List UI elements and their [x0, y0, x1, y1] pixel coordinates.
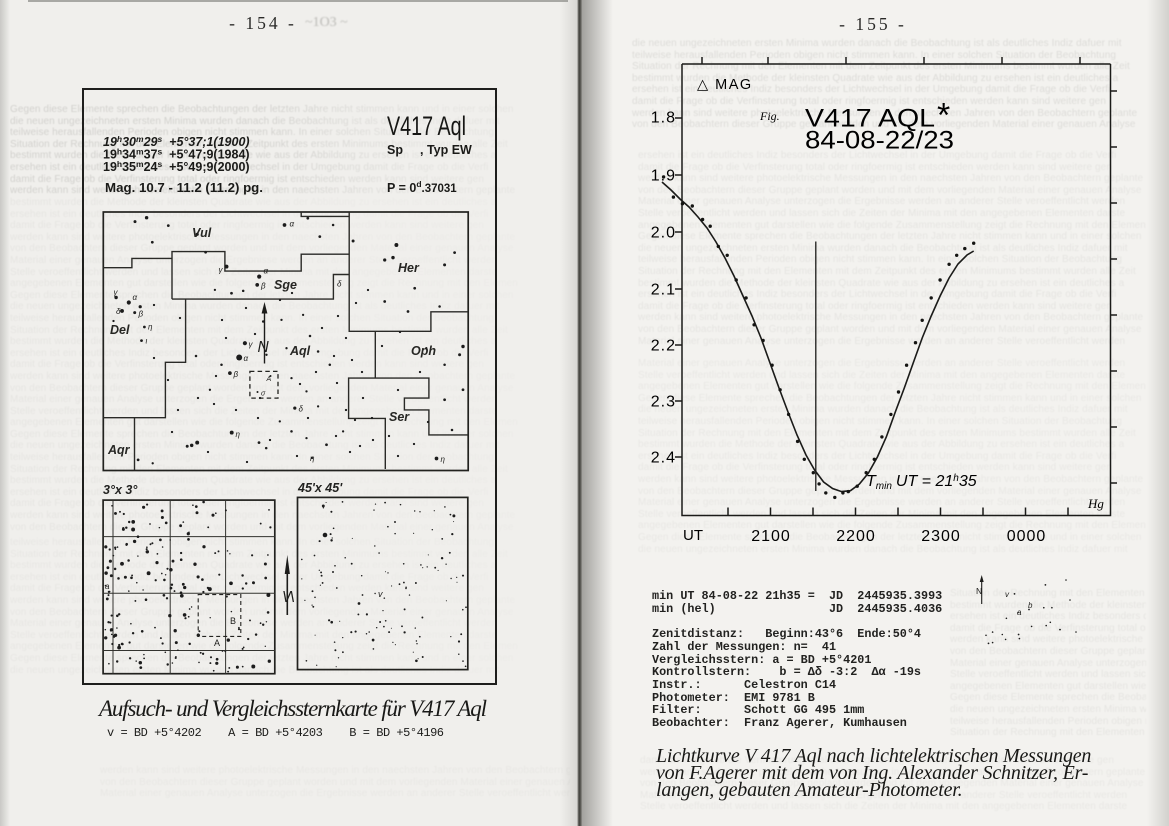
svg-text:v = BD +5°4202 A = BD +5°42: v = BD +5°4202 A = BD +5°4203 B = BD +5°…: [107, 726, 444, 740]
svg-text:A: A: [214, 638, 220, 648]
svg-text:V417 Aql: V417 Aql: [387, 111, 466, 141]
svg-text:δ: δ: [337, 280, 342, 289]
svg-text:2200: 2200: [836, 528, 876, 545]
svg-text:α: α: [264, 267, 269, 276]
svg-text:β: β: [233, 370, 239, 379]
svg-text:η: η: [148, 323, 153, 332]
svg-text:v: v: [1005, 590, 1010, 599]
svg-text:Vul: Vul: [192, 226, 212, 240]
svg-text:η: η: [236, 430, 241, 439]
svg-text:2100: 2100: [751, 528, 791, 545]
svg-text:B: B: [230, 616, 236, 626]
svg-text:b: b: [1028, 601, 1033, 610]
svg-text:0000: 0000: [1007, 528, 1047, 545]
svg-text:3°x 3°: 3°x 3°: [103, 483, 138, 497]
svg-text:η: η: [441, 455, 446, 464]
svg-text:ι: ι: [146, 337, 148, 346]
svg-text:Aql: Aql: [289, 344, 311, 358]
svg-text:UT: UT: [683, 527, 703, 544]
svg-text:△ MAG: △ MAG: [697, 77, 753, 93]
svg-text:Oph: Oph: [411, 344, 436, 358]
svg-text:, Typ EW: , Typ EW: [420, 143, 472, 157]
svg-text:19h35m24s +5°49;9(2000): 19h35m24s +5°49;9(2000): [103, 159, 250, 174]
svg-text:N: N: [258, 339, 270, 356]
svg-text:TminUT = 21h35: TminUT = 21h35: [866, 473, 977, 492]
svg-text:Mag. 10.7 - 11.2 (11.2) pg.: Mag. 10.7 - 11.2 (11.2) pg.: [105, 181, 263, 195]
svg-text:a: a: [1017, 608, 1022, 617]
svg-text:δ: δ: [116, 307, 121, 316]
svg-text:γ: γ: [249, 340, 254, 349]
svg-text:α: α: [290, 220, 295, 229]
svg-text:Aqr: Aqr: [107, 443, 131, 457]
svg-text:2.2: 2.2: [651, 338, 676, 355]
svg-text:A: A: [266, 376, 272, 383]
svg-text:δ: δ: [299, 405, 304, 414]
svg-text:Sge: Sge: [274, 278, 297, 292]
svg-text:2.4: 2.4: [651, 450, 676, 467]
svg-text:Del: Del: [110, 323, 130, 337]
svg-text:Fig.: Fig.: [759, 109, 780, 123]
svg-text:v: v: [378, 589, 383, 599]
svg-text:Aufsuch- und Vergleichssternka: Aufsuch- und Vergleichssternkarte für V4…: [97, 696, 487, 721]
svg-text:45'x 45': 45'x 45': [297, 481, 343, 495]
svg-text:84-08-22/23: 84-08-22/23: [805, 127, 954, 155]
svg-text:Sp: Sp: [387, 143, 403, 157]
svg-text:Hg: Hg: [1087, 496, 1104, 511]
svg-text:α: α: [133, 293, 138, 302]
svg-text:γ: γ: [219, 266, 224, 275]
svg-text:2.3: 2.3: [651, 394, 676, 411]
svg-text:α: α: [244, 354, 249, 363]
svg-text:2.0: 2.0: [651, 225, 676, 242]
svg-text:1.8: 1.8: [651, 110, 676, 127]
svg-text:η: η: [310, 454, 315, 463]
svg-text:P = 0d.37031: P = 0d.37031: [387, 179, 457, 195]
svg-text:σ: σ: [261, 391, 266, 398]
svg-text:γ: γ: [114, 288, 119, 297]
svg-text:β: β: [260, 282, 266, 291]
svg-text:N: N: [976, 586, 982, 596]
svg-text:N: N: [283, 589, 295, 606]
svg-text:Her: Her: [398, 261, 420, 275]
svg-text:2300: 2300: [921, 528, 961, 545]
svg-text:β: β: [138, 310, 144, 319]
svg-text:Ser: Ser: [389, 410, 410, 424]
svg-text:a: a: [105, 582, 110, 591]
svg-text:2.1: 2.1: [651, 282, 676, 299]
